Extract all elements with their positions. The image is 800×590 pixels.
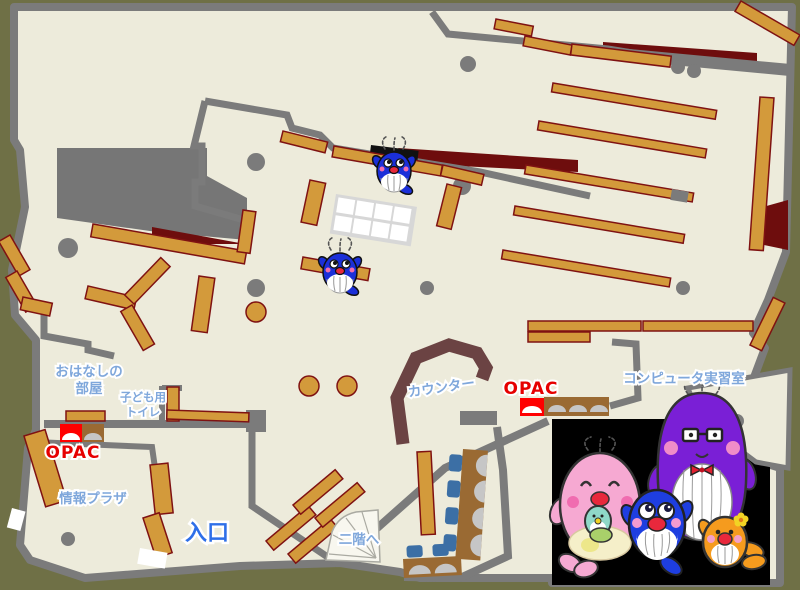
entrance-label: 入口: [185, 521, 229, 546]
story-room-label: おはなしの: [55, 364, 123, 380]
opac-station-right: [520, 397, 609, 416]
opac-station-left: [60, 424, 104, 442]
info-plaza-label: 情報プラザ: [59, 490, 127, 507]
opac-left-label: OPAC: [46, 443, 101, 463]
opac-right-label: OPAC: [504, 379, 559, 399]
kids-toilet-label: 子ども用: [120, 390, 166, 404]
floor-map-svg: おはなしの 部屋 子ども用 トイレ OPAC 情報プラザ 入口 二階へ カウンタ…: [0, 0, 800, 590]
to-second-floor-label: 二階へ: [339, 531, 380, 548]
library-floor-map: おはなしの 部屋 子ども用 トイレ OPAC 情報プラザ 入口 二階へ カウンタ…: [0, 0, 800, 590]
kids-toilet-label-line2: トイレ: [126, 405, 161, 419]
counter-gate: [460, 411, 497, 425]
computer-room-label: コンピュータ実習室: [623, 370, 745, 387]
story-room-label-line2: 部屋: [76, 380, 103, 397]
